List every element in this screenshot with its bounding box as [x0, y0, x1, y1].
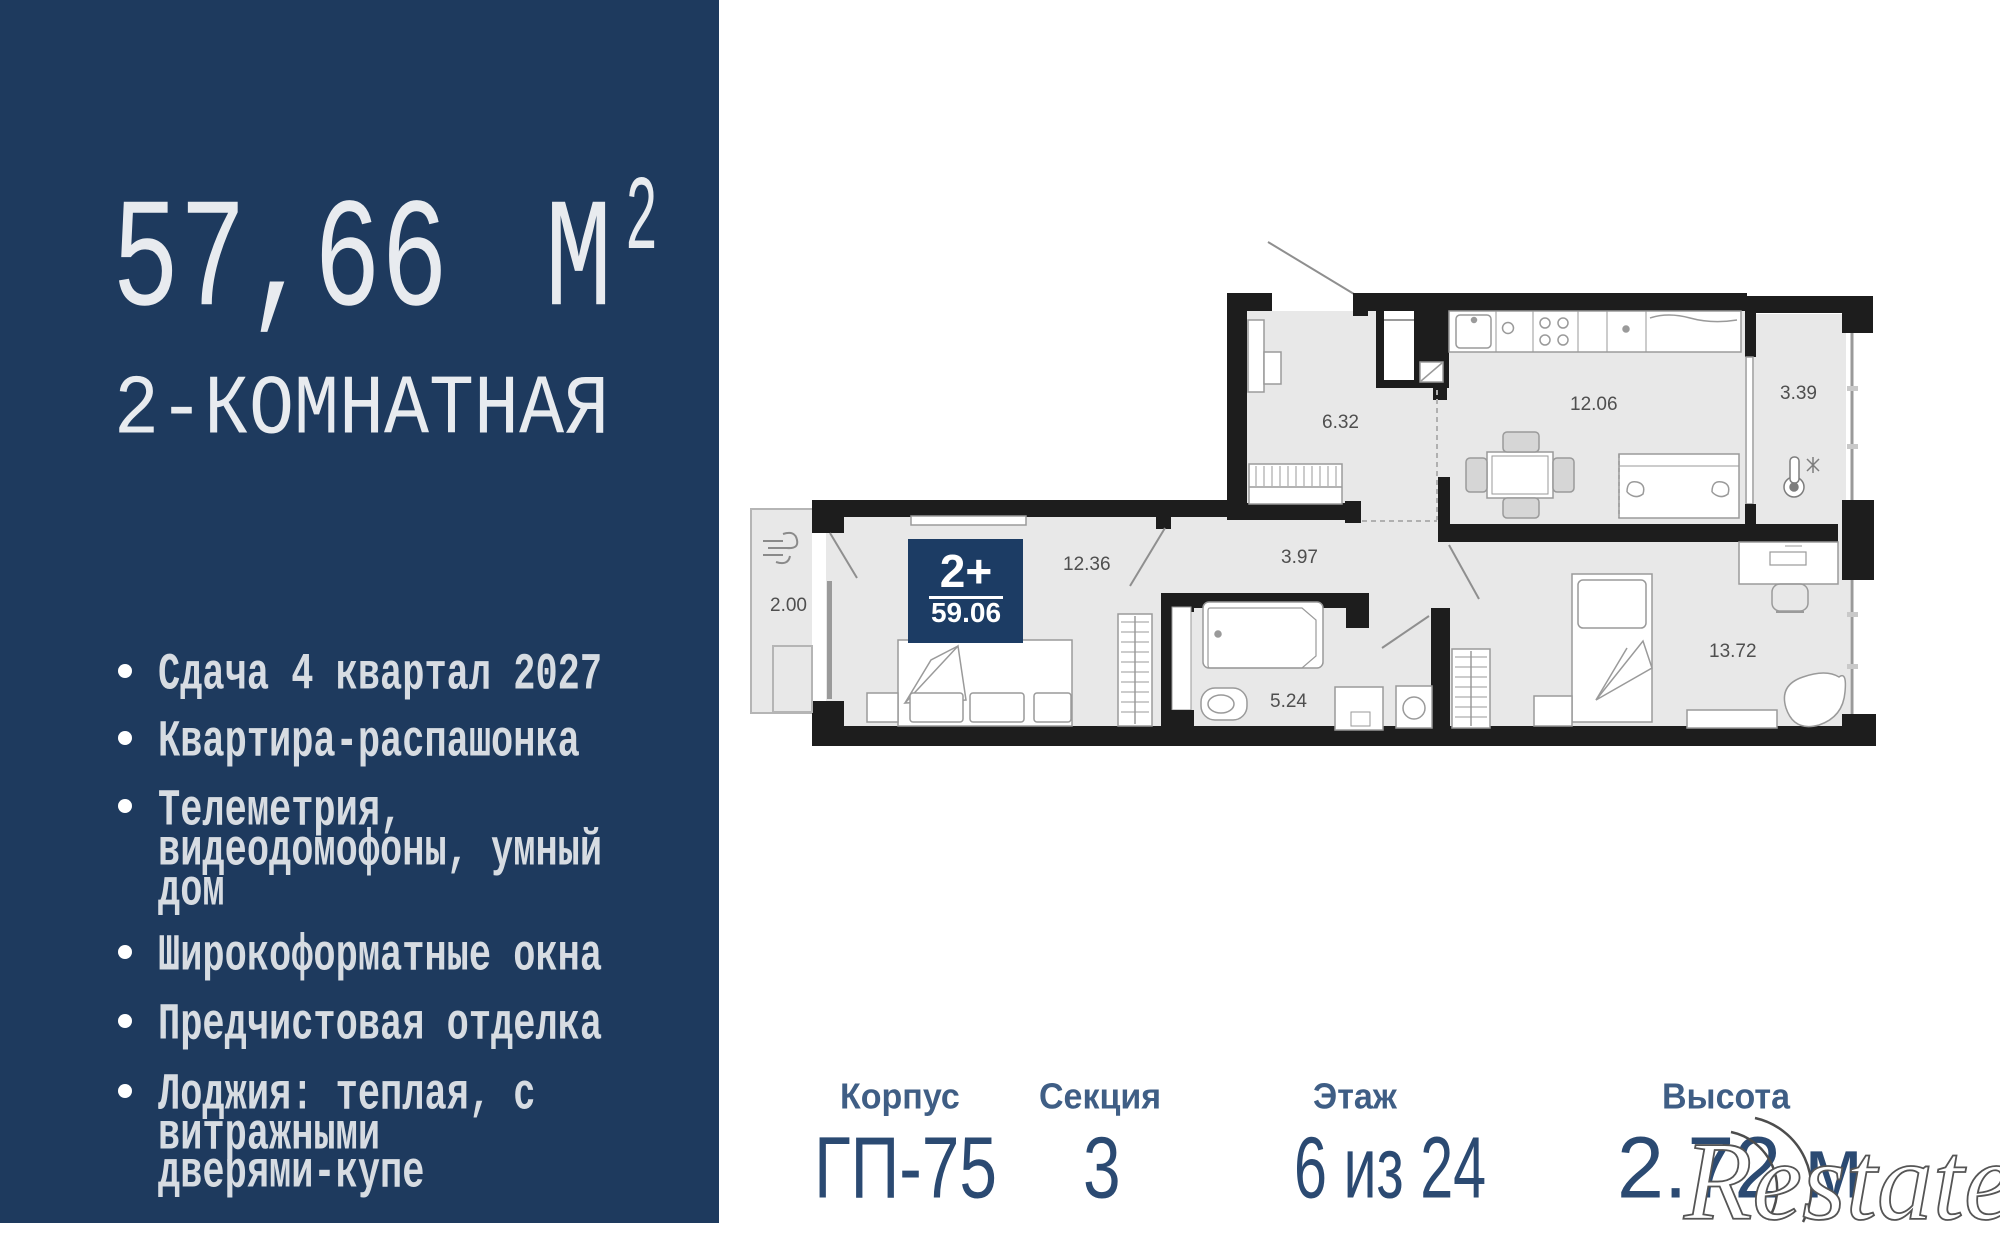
svg-text:12.06: 12.06	[1570, 394, 1618, 415]
svg-text:13.72: 13.72	[1709, 641, 1757, 662]
svg-text:12.36: 12.36	[1063, 554, 1111, 575]
svg-text:2+: 2+	[940, 545, 992, 597]
svg-text:5.24: 5.24	[1270, 691, 1307, 712]
svg-text:3.39: 3.39	[1780, 383, 1817, 404]
svg-text:59.06: 59.06	[931, 597, 1001, 628]
svg-text:2.00: 2.00	[770, 595, 807, 616]
svg-text:6.32: 6.32	[1322, 412, 1359, 433]
svg-text:3.97: 3.97	[1281, 547, 1318, 568]
